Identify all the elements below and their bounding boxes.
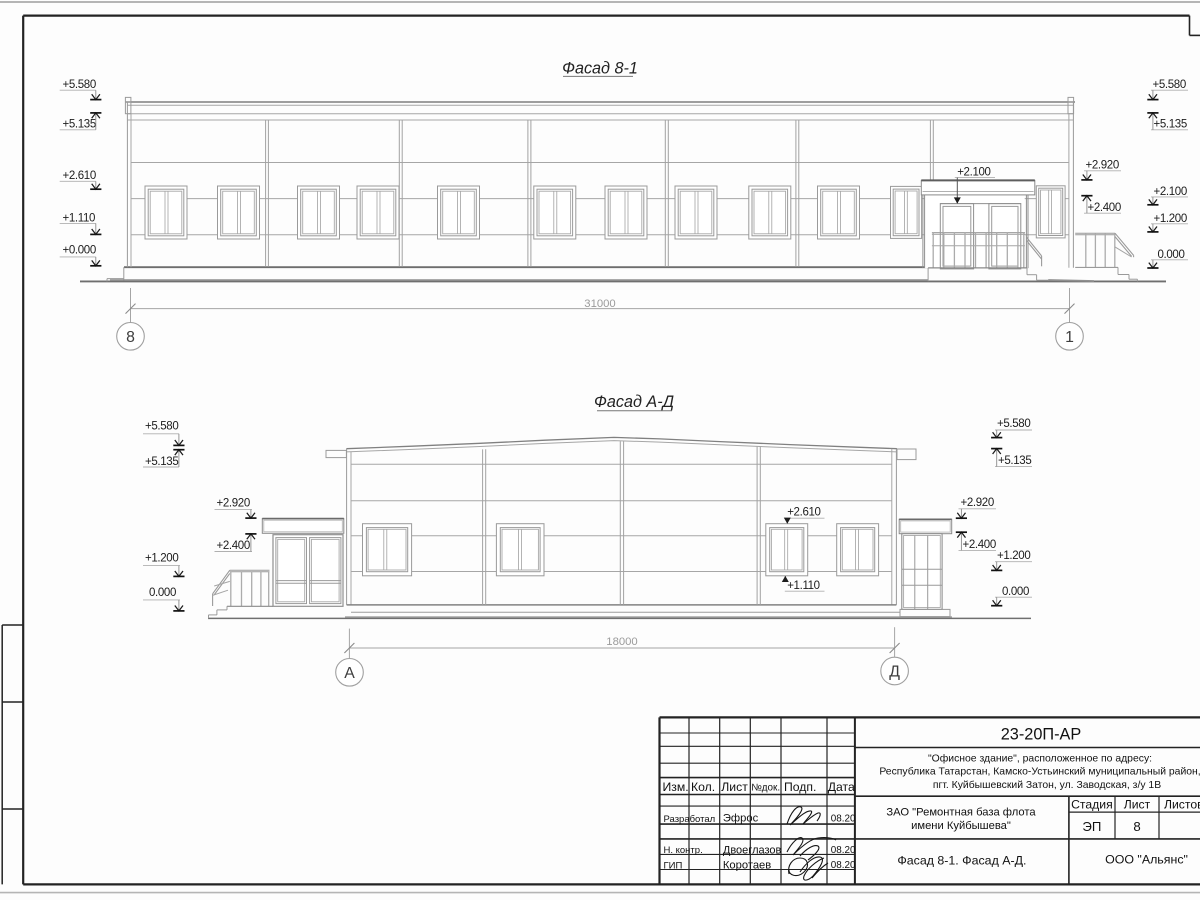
svg-text:+1.200: +1.200 <box>1154 213 1187 225</box>
svg-text:+1.200: +1.200 <box>145 553 178 565</box>
svg-text:+2.920: +2.920 <box>1086 159 1119 171</box>
svg-text:8: 8 <box>1133 819 1140 834</box>
svg-text:08.20: 08.20 <box>831 845 856 856</box>
svg-text:+2.920: +2.920 <box>217 498 250 510</box>
svg-text:Изм.: Изм. <box>663 780 689 794</box>
svg-text:А: А <box>344 665 355 682</box>
svg-text:08.20: 08.20 <box>831 813 856 824</box>
svg-text:Д: Д <box>889 664 900 681</box>
svg-text:ЭП: ЭП <box>1082 819 1101 834</box>
svg-text:Разработал: Разработал <box>664 814 716 825</box>
svg-text:+5.580: +5.580 <box>63 79 96 91</box>
svg-text:+5.135: +5.135 <box>63 119 96 131</box>
svg-text:08.20: 08.20 <box>831 860 856 871</box>
svg-text:23-20П-АР: 23-20П-АР <box>1001 725 1081 743</box>
svg-text:+2.920: +2.920 <box>961 497 994 509</box>
svg-text:+2.610: +2.610 <box>63 170 96 182</box>
svg-text:18000: 18000 <box>606 636 637 648</box>
svg-text:Фасад 8-1. Фасад А-Д.: Фасад 8-1. Фасад А-Д. <box>897 853 1026 867</box>
svg-text:+0.000: +0.000 <box>63 245 96 257</box>
svg-text:+1.110: +1.110 <box>63 212 96 224</box>
svg-text:+5.580: +5.580 <box>1153 79 1186 91</box>
svg-text:№док.: №док. <box>751 783 780 794</box>
svg-text:+2.400: +2.400 <box>963 539 996 551</box>
svg-text:+5.580: +5.580 <box>997 418 1030 430</box>
svg-text:+5.580: +5.580 <box>145 421 178 433</box>
svg-text:+5.135: +5.135 <box>145 456 178 468</box>
svg-text:Коротаев: Коротаев <box>723 860 771 872</box>
svg-text:+1.110: +1.110 <box>787 580 820 592</box>
svg-text:+5.135: +5.135 <box>1154 119 1187 131</box>
svg-text:0.000: 0.000 <box>1002 586 1029 598</box>
svg-text:Двоеглазов: Двоеглазов <box>723 844 782 856</box>
svg-text:пгт. Куйбышевский Затон, ул. З: пгт. Куйбышевский Затон, ул. Заводская, … <box>933 779 1161 791</box>
svg-text:Республика Татарстан, Камско-У: Республика Татарстан, Камско-Устьинский … <box>879 766 1200 778</box>
svg-text:Подп.: Подп. <box>784 780 816 794</box>
svg-text:Эфрос: Эфрос <box>723 813 759 825</box>
svg-text:ООО "Альянс": ООО "Альянс" <box>1105 853 1188 867</box>
svg-text:0.000: 0.000 <box>1158 249 1185 261</box>
svg-text:Н. контр.: Н. контр. <box>664 845 703 856</box>
svg-text:Стадия: Стадия <box>1071 798 1113 812</box>
svg-text:+5.135: +5.135 <box>998 455 1031 467</box>
svg-text:Лист: Лист <box>721 780 748 794</box>
svg-text:Фасад 8-1: Фасад 8-1 <box>562 60 638 78</box>
svg-text:ЗАО "Ремонтная база флота: ЗАО "Ремонтная база флота <box>886 807 1036 819</box>
svg-text:1: 1 <box>1065 329 1074 346</box>
svg-text:0.000: 0.000 <box>149 587 176 599</box>
svg-text:+2.400: +2.400 <box>1088 202 1121 214</box>
svg-text:Кол.: Кол. <box>691 780 715 794</box>
svg-text:+2.400: +2.400 <box>217 540 250 552</box>
svg-text:имени Куйбышева": имени Куйбышева" <box>911 820 1011 832</box>
svg-text:8: 8 <box>126 329 135 346</box>
svg-text:Листов: Листов <box>1164 798 1200 812</box>
svg-text:Фасад А-Д: Фасад А-Д <box>594 393 674 411</box>
svg-text:+2.100: +2.100 <box>957 167 990 179</box>
svg-text:"Офисное здание", расположенно: "Офисное здание", расположенное по адрес… <box>928 752 1152 764</box>
svg-text:ГИП: ГИП <box>664 860 683 871</box>
svg-text:Дата: Дата <box>828 780 855 794</box>
svg-text:+2.100: +2.100 <box>1154 186 1187 198</box>
svg-text:31000: 31000 <box>584 298 615 310</box>
svg-text:+1.200: +1.200 <box>997 550 1030 562</box>
svg-text:Лист: Лист <box>1124 798 1151 812</box>
svg-text:+2.610: +2.610 <box>787 507 820 519</box>
